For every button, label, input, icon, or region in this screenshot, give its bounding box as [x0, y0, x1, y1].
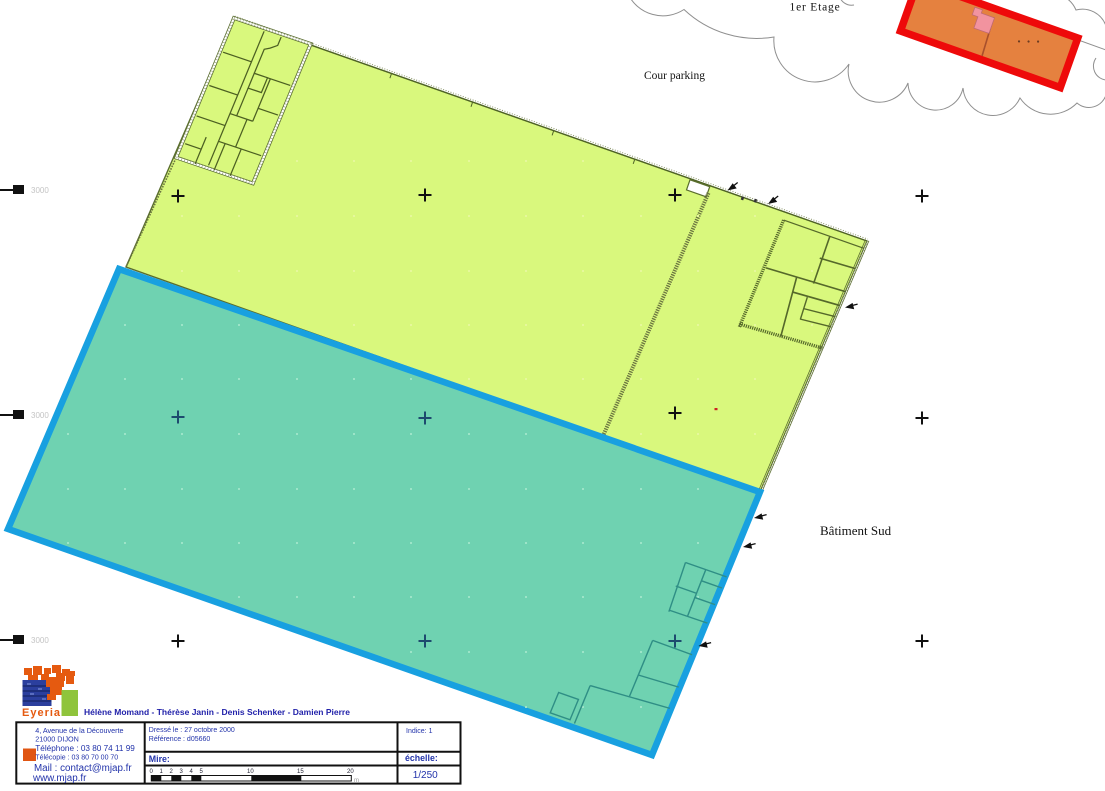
svg-text:5: 5 — [200, 769, 204, 775]
svg-text:15: 15 — [297, 769, 304, 775]
svg-text:3000: 3000 — [31, 636, 49, 645]
svg-text:échelle:: échelle: — [405, 753, 438, 763]
svg-text:1/250: 1/250 — [413, 770, 438, 781]
svg-text:Télécopie : 03 80 70 00 70: Télécopie : 03 80 70 00 70 — [35, 755, 118, 762]
svg-text:21000 DIJON: 21000 DIJON — [35, 735, 79, 744]
svg-text:1: 1 — [160, 769, 164, 775]
svg-text:Eyeria: Eyeria — [22, 707, 61, 719]
svg-text:3000: 3000 — [31, 411, 49, 420]
svg-text:Référence : d05660: Référence : d05660 — [149, 736, 211, 743]
svg-text:4: 4 — [190, 769, 194, 775]
svg-text:2: 2 — [170, 769, 174, 775]
svg-text:3000: 3000 — [31, 186, 49, 195]
svg-text:Téléphone : 03 80 74 11 99: Téléphone : 03 80 74 11 99 — [35, 744, 135, 753]
svg-text:1er Etage: 1er Etage — [790, 2, 841, 14]
svg-text:Hélène Momand - Thérèse Janin: Hélène Momand - Thérèse Janin - Denis Sc… — [84, 707, 350, 717]
svg-text:20: 20 — [347, 769, 354, 775]
svg-text:3: 3 — [180, 769, 184, 775]
svg-text:Mire:: Mire: — [149, 754, 170, 764]
svg-text:Dressé le : 27 octobre 2000: Dressé le : 27 octobre 2000 — [149, 727, 235, 734]
svg-text:Bâtiment Sud: Bâtiment Sud — [820, 523, 892, 538]
svg-text:m: m — [354, 778, 359, 784]
svg-text:0: 0 — [150, 769, 154, 775]
svg-text:Indice: 1: Indice: 1 — [406, 728, 433, 735]
svg-text:10: 10 — [247, 769, 254, 775]
svg-text:Cour parking: Cour parking — [644, 70, 705, 82]
svg-text:www.mjap.fr: www.mjap.fr — [32, 773, 87, 784]
